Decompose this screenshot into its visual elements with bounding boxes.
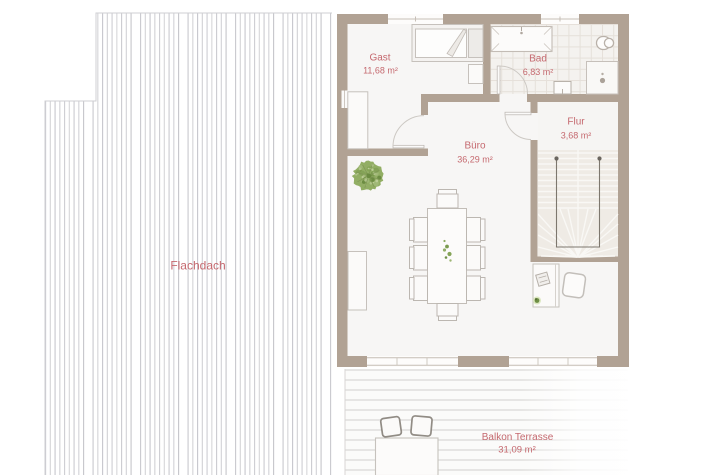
svg-text:11,68 m²: 11,68 m² (363, 66, 398, 76)
svg-text:Flachdach: Flachdach (170, 259, 225, 273)
svg-text:31,09 m²: 31,09 m² (498, 445, 536, 456)
svg-text:36,29 m²: 36,29 m² (457, 155, 493, 165)
svg-text:Büro: Büro (464, 141, 486, 152)
svg-text:Bad: Bad (529, 54, 547, 65)
svg-text:Balkon Terrasse: Balkon Terrasse (482, 432, 554, 443)
svg-text:Flur: Flur (567, 117, 585, 128)
svg-text:Gast: Gast (369, 53, 390, 64)
svg-text:6,83 m²: 6,83 m² (523, 67, 554, 77)
svg-text:3,68 m²: 3,68 m² (561, 131, 592, 141)
